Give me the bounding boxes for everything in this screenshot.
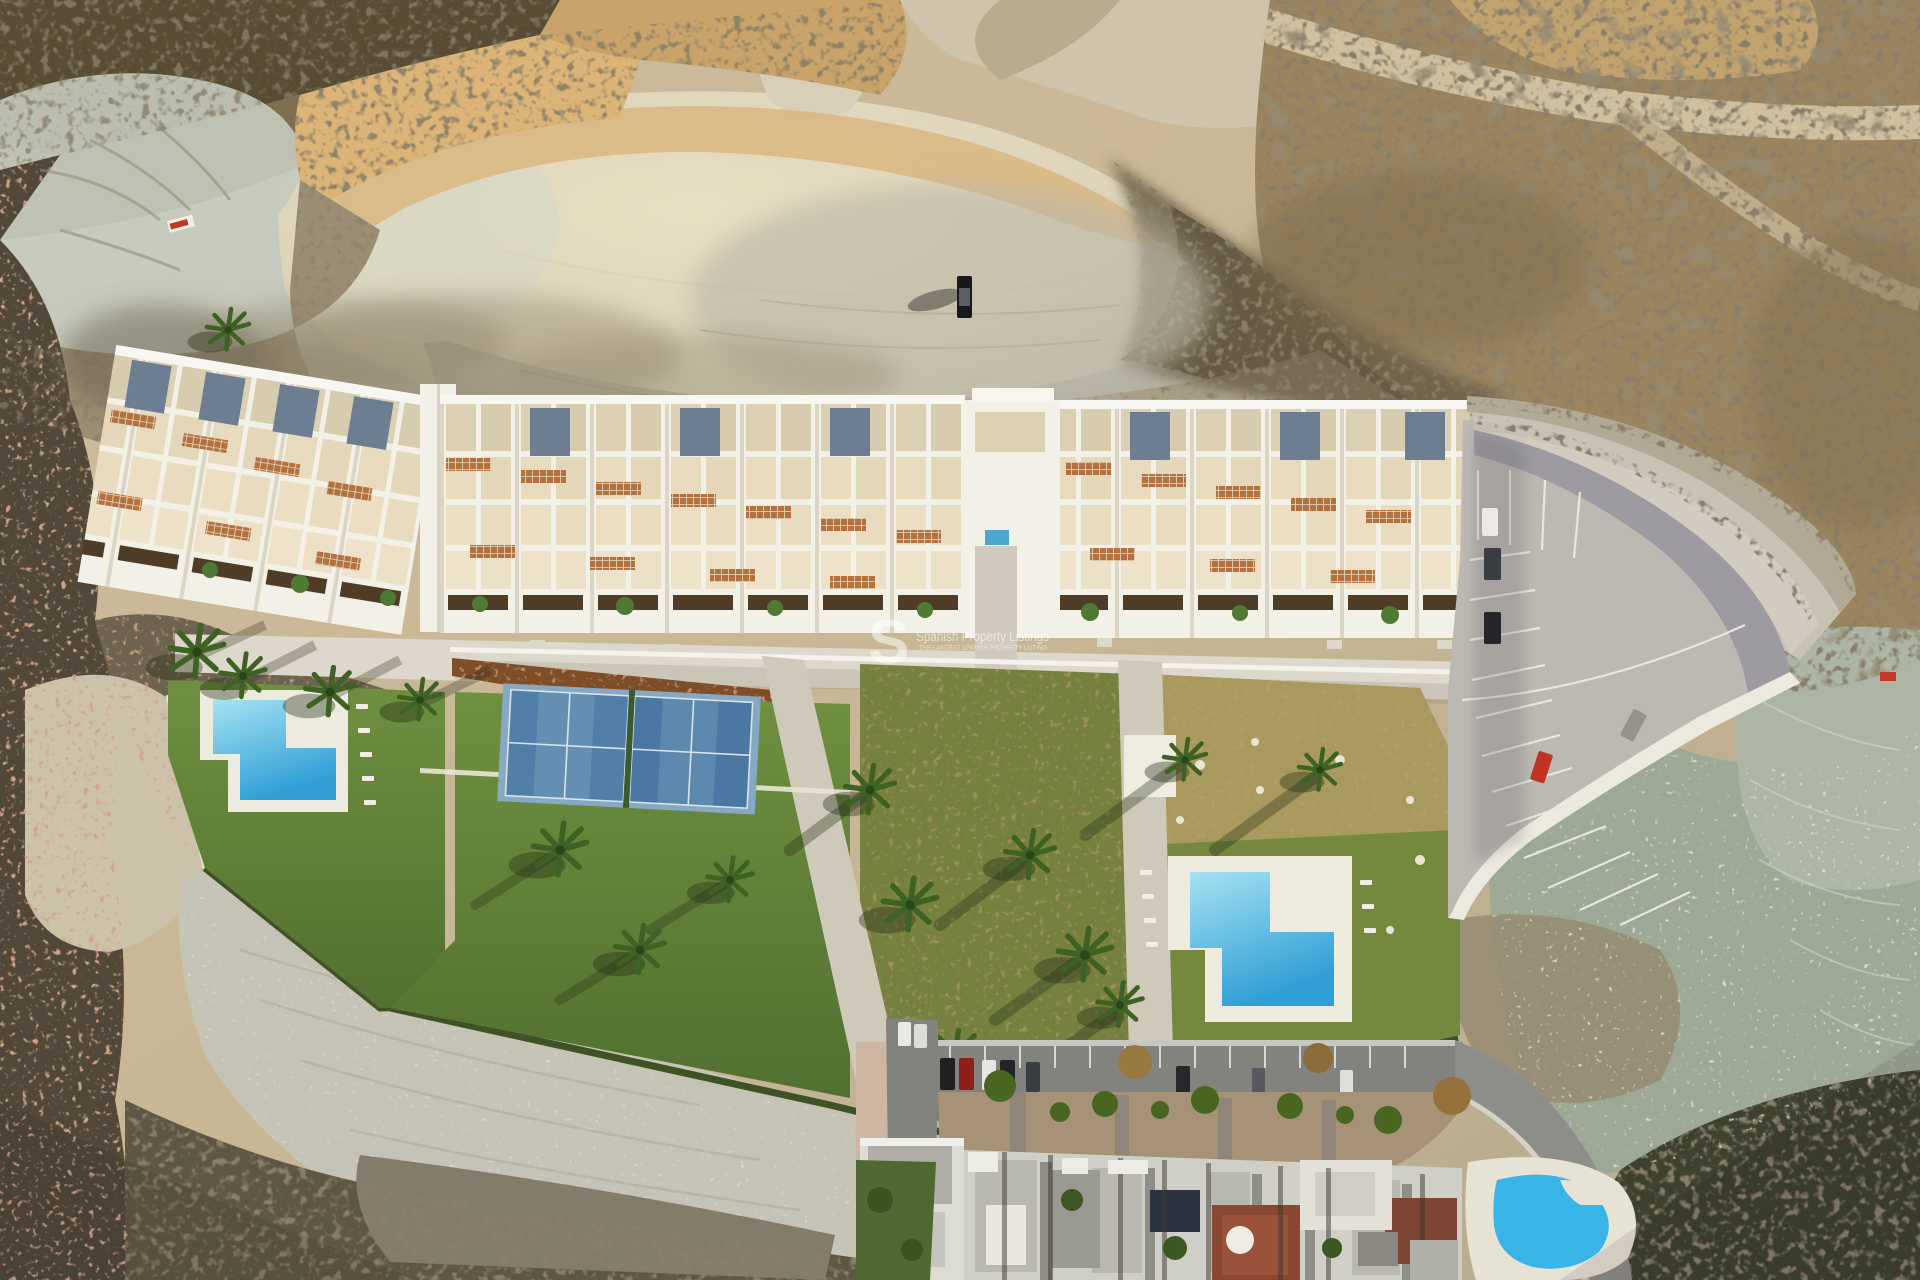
svg-text:S: S: [868, 608, 909, 677]
svg-text:THE LARGEST SPANISH PROPERTY L: THE LARGEST SPANISH PROPERTY LISTING: [919, 645, 1047, 652]
svg-text:Spanish Property Listings: Spanish Property Listings: [916, 629, 1049, 644]
